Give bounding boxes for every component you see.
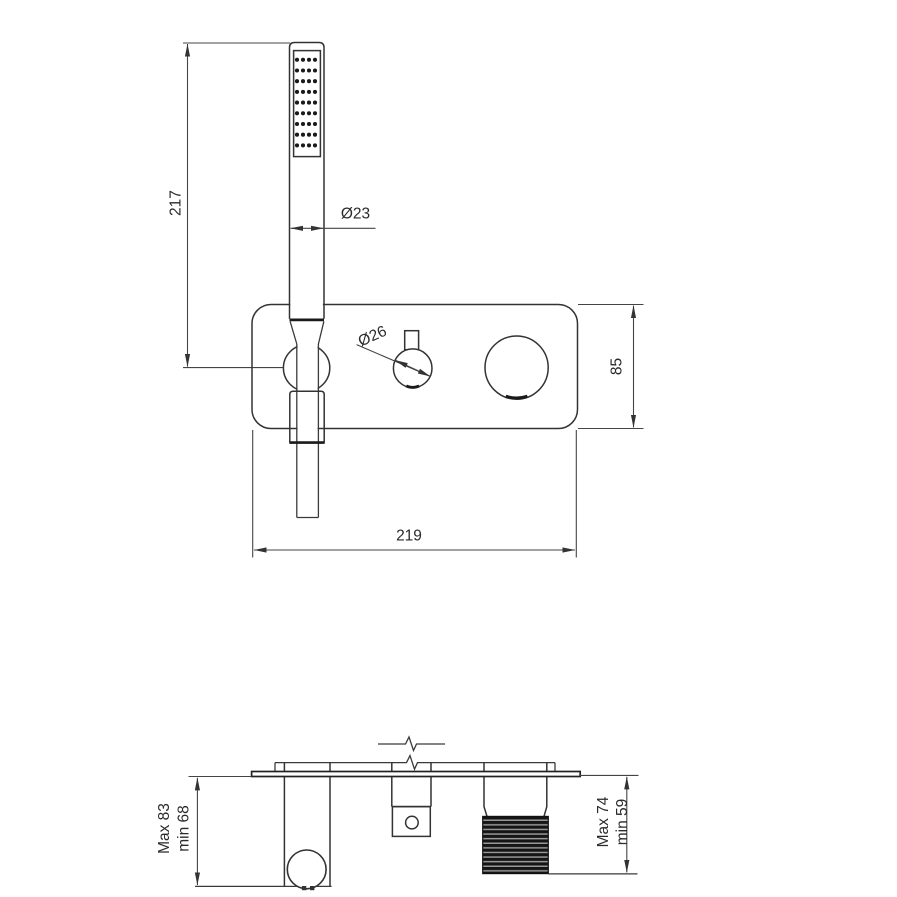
diverter-box bbox=[392, 807, 430, 837]
spray-nozzle-dot bbox=[301, 143, 305, 147]
dim-label-85: 85 bbox=[609, 358, 626, 375]
knob-index-mark bbox=[506, 396, 528, 398]
holder-ball bbox=[287, 850, 326, 889]
technical-drawing-page: 217 Ø23 bbox=[0, 0, 897, 897]
spray-nozzle-dot bbox=[313, 101, 317, 105]
diverter-button bbox=[406, 816, 419, 829]
dim-label-left-max: Max 83 bbox=[156, 803, 173, 854]
spray-nozzle-dot bbox=[295, 58, 299, 62]
spray-nozzle-dot bbox=[301, 133, 305, 137]
diverter-knob bbox=[393, 331, 432, 388]
spray-nozzle-dot bbox=[307, 133, 311, 137]
dim-label-217: 217 bbox=[168, 190, 185, 216]
diverter-profile bbox=[392, 763, 431, 807]
wand-taper-right bbox=[318, 321, 324, 344]
spray-nozzle-dot bbox=[307, 58, 311, 62]
spray-nozzle-dot bbox=[295, 90, 299, 94]
spray-nozzle-dot bbox=[313, 143, 317, 147]
spray-nozzle-dot bbox=[307, 90, 311, 94]
dim-label-dia26: Ø26 bbox=[356, 323, 390, 350]
spray-nozzle-dot bbox=[307, 143, 311, 147]
spray-nozzle-dot bbox=[307, 122, 311, 126]
dim-label-right-min: min 59 bbox=[614, 799, 631, 846]
spray-nozzle-dot bbox=[301, 101, 305, 105]
spray-nozzle-dot bbox=[301, 111, 305, 115]
dimension-217: 217 bbox=[168, 43, 291, 368]
spray-nozzle-dot bbox=[307, 68, 311, 72]
spray-nozzle-dot bbox=[313, 133, 317, 137]
diverter-head bbox=[392, 807, 431, 837]
side-view: Max 83 min 68 Max 74 min 59 bbox=[156, 737, 639, 890]
dimension-depth-left: Max 83 min 68 bbox=[156, 777, 251, 886]
spray-nozzle-dot bbox=[313, 79, 317, 83]
spray-nozzle-dot bbox=[301, 58, 305, 62]
wall-break-lines bbox=[275, 737, 555, 771]
dim-label-left-min: min 68 bbox=[176, 805, 193, 852]
spray-nozzle-dot bbox=[295, 111, 299, 115]
wand-cover-lower bbox=[298, 344, 318, 444]
spray-nozzle-dot bbox=[313, 58, 317, 62]
wand-taper-left bbox=[290, 321, 297, 344]
dimension-85: 85 bbox=[578, 305, 644, 429]
spray-nozzle-dot bbox=[295, 122, 299, 126]
dimension-219: 219 bbox=[253, 430, 577, 558]
spray-nozzle-dot bbox=[295, 68, 299, 72]
spray-nozzle-dot bbox=[307, 79, 311, 83]
knurled-grip bbox=[483, 816, 549, 873]
temperature-knob bbox=[485, 336, 548, 399]
knob-index-mark bbox=[406, 386, 419, 387]
dim-label-right-max: Max 74 bbox=[595, 796, 612, 847]
plate-back-edge bbox=[275, 756, 555, 770]
spray-nozzle-dot bbox=[301, 68, 305, 72]
spray-nozzle-dot bbox=[307, 111, 311, 115]
dimension-depth-right: Max 74 min 59 bbox=[580, 775, 639, 872]
ball-nub-right bbox=[310, 886, 314, 890]
dim-label-dia23: Ø23 bbox=[341, 206, 370, 223]
wand-cover-upper bbox=[290, 44, 323, 320]
spray-nozzle-dot bbox=[301, 90, 305, 94]
spray-nozzle-dot bbox=[301, 79, 305, 83]
spray-nozzle-dot bbox=[307, 101, 311, 105]
break-line-upper bbox=[378, 737, 445, 751]
plate-slab bbox=[252, 772, 581, 777]
front-view: 217 Ø23 bbox=[168, 43, 644, 558]
spray-nozzle-dot bbox=[295, 143, 299, 147]
shower-mixer-drawing: 217 Ø23 bbox=[0, 0, 897, 897]
spray-nozzle-dot bbox=[295, 133, 299, 137]
knob-tab bbox=[405, 331, 419, 350]
spray-nozzle-dot bbox=[313, 68, 317, 72]
spray-nozzle-dot bbox=[301, 122, 305, 126]
spray-nozzle-dot bbox=[295, 101, 299, 105]
spray-nozzle-dot bbox=[313, 122, 317, 126]
dim-label-219: 219 bbox=[396, 528, 422, 545]
spray-nozzle-dot bbox=[295, 79, 299, 83]
spray-nozzle-dot bbox=[313, 111, 317, 115]
spray-nozzle-dot bbox=[313, 90, 317, 94]
ball-nub-left bbox=[302, 886, 306, 890]
knob-body bbox=[485, 336, 548, 399]
